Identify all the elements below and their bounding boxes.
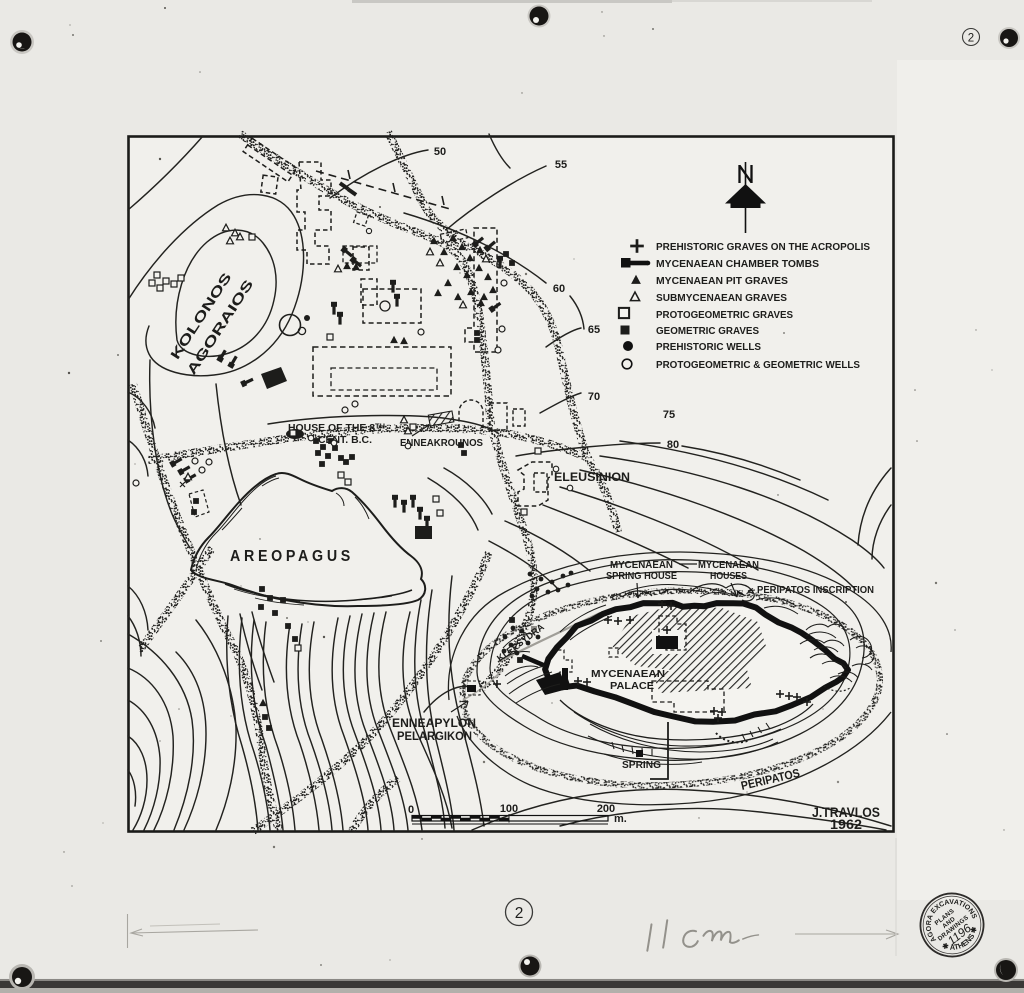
svg-text:PERIPATOS INSCRIPTION: PERIPATOS INSCRIPTION <box>757 585 874 596</box>
svg-text:80: 80 <box>667 439 679 451</box>
svg-text:MYCENAEAN PIT GRAVES: MYCENAEAN PIT GRAVES <box>656 276 788 287</box>
svg-text:1962: 1962 <box>830 817 862 832</box>
svg-text:GEOMETRIC GRAVES: GEOMETRIC GRAVES <box>656 326 759 337</box>
svg-text:AREOPAGUS: AREOPAGUS <box>230 548 354 565</box>
svg-text:70: 70 <box>588 391 600 403</box>
svg-text:55: 55 <box>555 159 567 171</box>
svg-text:CENT. B.C.: CENT. B.C. <box>318 434 372 446</box>
svg-text:MYCENAEAN CHAMBER TOMBS: MYCENAEAN CHAMBER TOMBS <box>656 259 819 270</box>
svg-text:200: 200 <box>597 803 615 815</box>
svg-text:2: 2 <box>968 33 974 45</box>
svg-text:100: 100 <box>500 803 518 815</box>
svg-text:PREHISTORIC WELLS: PREHISTORIC WELLS <box>656 342 761 353</box>
svg-text:PROTOGEOMETRIC & GEOMETRIC WEL: PROTOGEOMETRIC & GEOMETRIC WELLS <box>656 360 860 371</box>
svg-text:PALACE: PALACE <box>610 680 654 692</box>
svg-text:50: 50 <box>434 146 446 158</box>
svg-text:PREHISTORIC GRAVES ON THE ACRO: PREHISTORIC GRAVES ON THE ACROPOLIS <box>656 242 870 253</box>
svg-text:MYCENAEAN: MYCENAEAN <box>610 560 673 571</box>
svg-text:65: 65 <box>588 324 600 336</box>
svg-text:75: 75 <box>663 409 675 421</box>
svg-text:MYCENAEAN: MYCENAEAN <box>591 668 665 680</box>
svg-text:SUBMYCENAEAN GRAVES: SUBMYCENAEAN GRAVES <box>656 293 787 304</box>
svg-text:SPRING: SPRING <box>622 759 661 771</box>
svg-text:0: 0 <box>408 804 414 816</box>
svg-text:MYCENAEAN: MYCENAEAN <box>698 560 759 571</box>
svg-text:ELEUSINION: ELEUSINION <box>554 472 630 484</box>
svg-text:SPRING HOUSE: SPRING HOUSE <box>606 571 677 582</box>
svg-text:m.: m. <box>614 813 627 825</box>
svg-text:60: 60 <box>553 283 565 295</box>
svg-text:HOUSES: HOUSES <box>710 571 747 582</box>
svg-text:2: 2 <box>515 905 524 922</box>
svg-text:PROTOGEOMETRIC GRAVES: PROTOGEOMETRIC GRAVES <box>656 310 793 321</box>
svg-text:PELARGIKON: PELARGIKON <box>397 731 472 743</box>
svg-text:ENNEAKROUNOS: ENNEAKROUNOS <box>400 437 483 449</box>
